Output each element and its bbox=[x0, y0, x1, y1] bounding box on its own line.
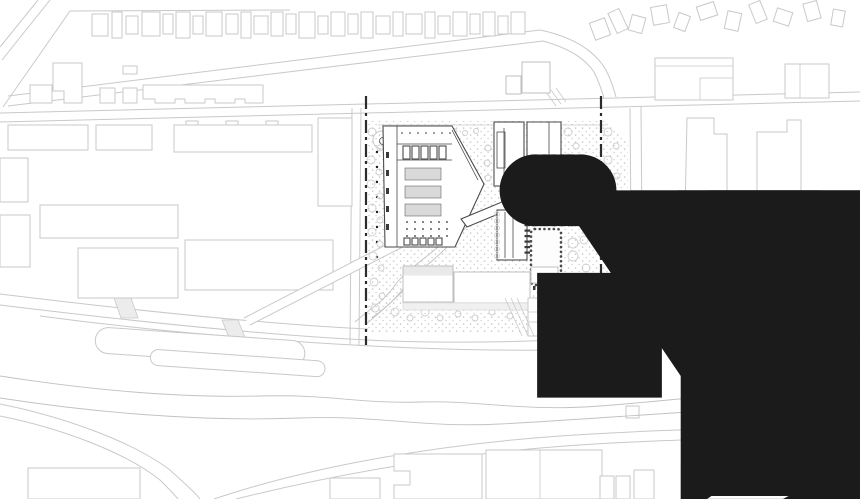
square-icon bbox=[537, 273, 662, 398]
site-plan-drawing: Architectural site plan bbox=[0, 0, 860, 499]
supermarket-block bbox=[522, 62, 550, 93]
site-plan-canvas: Architectural site plan bbox=[0, 0, 860, 499]
dot-icon bbox=[545, 154, 617, 226]
plaza-center bbox=[454, 272, 530, 303]
context-industrial-west bbox=[0, 63, 352, 298]
